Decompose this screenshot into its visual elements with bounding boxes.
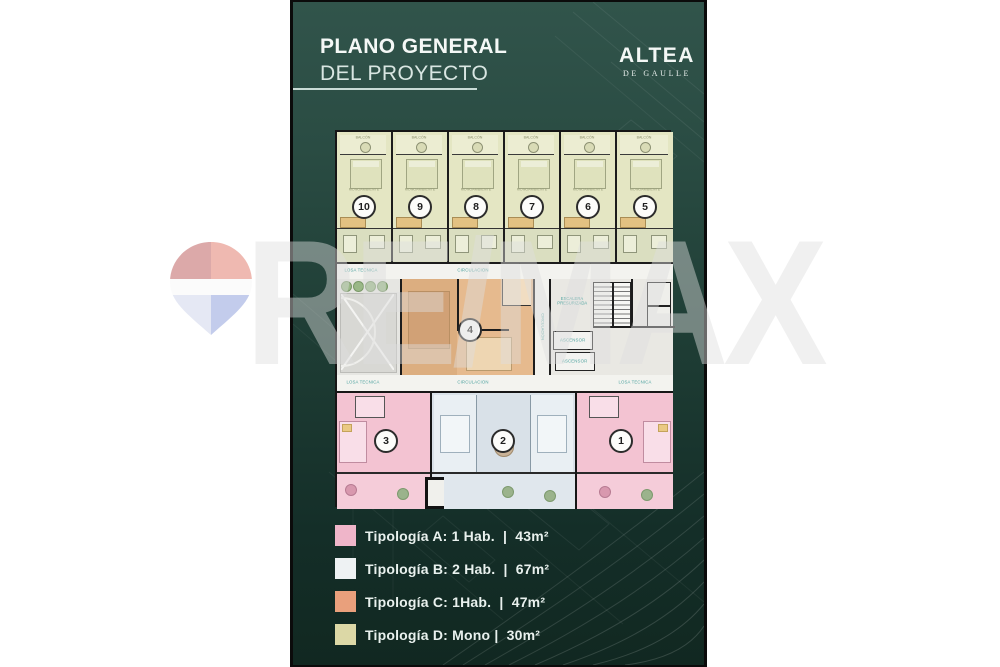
service-stair: [425, 477, 444, 509]
shrub-icon: [377, 281, 388, 292]
balcony-label: BALCÓN: [630, 136, 659, 140]
balcony-label: BALCÓN: [461, 136, 489, 140]
balcony-label: BALCÓN: [517, 136, 545, 140]
unit-type-label: MONOAMBIENTE: [403, 188, 436, 192]
floor-plan: BALCÓN MONOAMBIENTE 10 BALCÓN MONOAMBIEN…: [335, 130, 671, 507]
legend-item-a: Tipología A: 1 Hab. | 43m²: [335, 525, 549, 546]
fixture: [455, 235, 469, 253]
balcony: [432, 472, 575, 509]
page-title: PLANO GENERAL: [320, 35, 507, 59]
wall-segment: [631, 279, 633, 328]
pillow: [658, 424, 668, 432]
unit-number-badge: 9: [408, 195, 432, 219]
terrace-area: [337, 279, 400, 375]
legend: Tipología A: 1 Hab. | 43m² Tipología B: …: [335, 525, 549, 645]
fixture: [623, 235, 637, 253]
unit-type-label: MONOAMBIENTE: [571, 188, 604, 192]
rug: [408, 291, 450, 349]
table-icon: [640, 142, 651, 153]
legend-label: Tipología D: Mono | 30m²: [365, 627, 540, 643]
fixture: [343, 235, 357, 253]
elevator-label: ASCENSOR: [562, 359, 587, 363]
unit-type-label: MONOAMBIENTE: [628, 188, 663, 192]
elevator-2: ASCENSOR: [555, 352, 595, 371]
pillow: [409, 161, 435, 167]
bed: [574, 159, 606, 189]
fixture: [425, 235, 441, 249]
balcony: BALCÓN: [452, 135, 498, 155]
bed: [643, 421, 671, 463]
fixture: [481, 235, 497, 249]
fixture: [399, 235, 413, 253]
wall-segment: [648, 305, 670, 307]
balcony-label: BALCÓN: [349, 136, 377, 140]
plant-icon: [544, 490, 556, 502]
balcony: BALCÓN: [508, 135, 554, 155]
stair-divider: [612, 283, 614, 327]
plant-icon: [397, 488, 409, 500]
legend-label: Tipología A: 1 Hab. | 43m²: [365, 528, 549, 544]
bedroom-left: [434, 395, 477, 473]
service-core: ESCALERA PRESURIZADA ASCENSOR ASCENSOR: [549, 279, 673, 375]
balcony: BALCÓN: [340, 135, 386, 155]
unit-number-badge: 5: [633, 195, 657, 219]
unit-type-label: MONOAMBIENTE: [515, 188, 548, 192]
unit-7: BALCÓN MONOAMBIENTE 7: [505, 132, 561, 262]
bed: [518, 159, 550, 189]
fixture: [537, 235, 553, 249]
shrub-icon: [341, 281, 352, 292]
corridor-upper: LOSA TÉCNICA CIRCULACIÓN: [337, 262, 673, 279]
unit-number-badge: 7: [520, 195, 544, 219]
table-icon: [416, 142, 427, 153]
bathroom-area: [393, 228, 447, 262]
fixture: [511, 235, 525, 253]
fixture: [567, 235, 581, 253]
legend-swatch-b: [335, 558, 356, 579]
fixture: [593, 235, 609, 249]
legend-label: Tipología B: 2 Hab. | 67m²: [365, 561, 549, 577]
wall-segment: [457, 279, 459, 329]
balcony: BALCÓN: [564, 135, 610, 155]
fixture: [369, 235, 385, 249]
meter-room: [647, 282, 671, 328]
unit-8: BALCÓN MONOAMBIENTE 8: [449, 132, 505, 262]
service-slab-label: LOSA TÉCNICA: [334, 381, 392, 385]
balcony: BALCÓN: [620, 135, 668, 155]
corridor-label: CIRCULACIÓN: [444, 269, 502, 273]
unit-number-badge: 4: [458, 318, 482, 342]
elevator-1: ASCENSOR: [553, 331, 593, 350]
legend-label: Tipología C: 1Hab. | 47m²: [365, 594, 545, 610]
bed: [350, 159, 382, 189]
brochure-card: PLANO GENERAL DEL PROYECTO ALTEA DE GAUL…: [290, 0, 707, 667]
plant-icon: [641, 489, 653, 501]
unit-number-badge: 8: [464, 195, 488, 219]
table-icon: [360, 142, 371, 153]
legend-item-d: Tipología D: Mono | 30m²: [335, 624, 549, 645]
legend-item-c: Tipología C: 1Hab. | 47m²: [335, 591, 549, 612]
unit-type-label: MONOAMBIENTE: [347, 188, 380, 192]
balcony: BALCÓN: [396, 135, 442, 155]
bed: [630, 159, 662, 189]
bathroom-area: [449, 228, 503, 262]
remax-balloon-icon: [167, 241, 255, 341]
unit-5: BALCÓN MONOAMBIENTE 5: [617, 132, 673, 262]
stairs: [593, 282, 631, 328]
balcony: [337, 472, 430, 509]
unit-9: BALCÓN MONOAMBIENTE 9: [393, 132, 449, 262]
bathroom-area: [617, 228, 673, 262]
shrub-icon: [365, 281, 376, 292]
plant-icon: [599, 486, 611, 498]
logo-name: ALTEA: [619, 44, 695, 68]
pillow: [465, 161, 491, 167]
paved-pad: [340, 293, 397, 373]
bathroom: [589, 396, 619, 418]
bathroom-area: [337, 228, 391, 262]
unit-number-badge: 10: [352, 195, 376, 219]
bed: [537, 415, 567, 453]
bathroom-area: [561, 228, 615, 262]
shrub-icon: [353, 281, 364, 292]
unit-number-badge: 1: [609, 429, 633, 453]
bedroom-right: [530, 395, 573, 473]
balcony-label: BALCÓN: [405, 136, 433, 140]
pillow: [521, 161, 547, 167]
unit-10: BALCÓN MONOAMBIENTE 10: [337, 132, 393, 262]
pillow: [577, 161, 603, 167]
bathroom: [502, 279, 531, 306]
wall-segment: [593, 326, 675, 328]
table-icon: [584, 142, 595, 153]
bathroom-area: [505, 228, 559, 262]
bed: [440, 415, 470, 453]
bed: [462, 159, 494, 189]
legend-swatch-a: [335, 525, 356, 546]
fixture: [651, 235, 667, 249]
page-subtitle: DEL PROYECTO: [320, 62, 507, 86]
service-slab-label: LOSA TÉCNICA: [332, 269, 390, 273]
logo-subtitle: DE GAULLE: [619, 69, 695, 78]
unit-number-badge: 2: [491, 429, 515, 453]
bed: [466, 337, 512, 371]
unit-type-label: MONOAMBIENTE: [459, 188, 492, 192]
bed: [339, 421, 367, 463]
title-underline: [293, 88, 477, 90]
unit-number-badge: 6: [576, 195, 600, 219]
balcony-label: BALCÓN: [573, 136, 601, 140]
corridor-vertical: CIRCULACIÓN: [535, 279, 549, 375]
unit-6: BALCÓN MONOAMBIENTE 6: [561, 132, 617, 262]
pillow: [353, 161, 379, 167]
legend-item-b: Tipología B: 2 Hab. | 67m²: [335, 558, 549, 579]
project-logo: ALTEA DE GAULLE: [619, 44, 695, 78]
table-icon: [528, 142, 539, 153]
elevator-label: ASCENSOR: [560, 338, 585, 342]
corridor-lower: LOSA TÉCNICA CIRCULACIÓN LOSA TÉCNICA: [337, 375, 673, 393]
stairs-label: ESCALERA PRESURIZADA: [557, 297, 586, 307]
table-icon: [472, 142, 483, 153]
title-block: PLANO GENERAL DEL PROYECTO: [320, 35, 507, 86]
bed: [406, 159, 438, 189]
legend-swatch-d: [335, 624, 356, 645]
balcony: [577, 472, 673, 509]
service-slab-label: LOSA TÉCNICA: [606, 381, 664, 385]
pillow: [342, 424, 352, 432]
unit-number-badge: 3: [374, 429, 398, 453]
stairs-label-line2: PRESURIZADA: [557, 302, 586, 307]
corridor-label: CIRCULACIÓN: [444, 381, 502, 385]
pillow: [633, 161, 659, 167]
bathroom: [355, 396, 385, 418]
legend-swatch-c: [335, 591, 356, 612]
plant-icon: [502, 486, 514, 498]
page: PLANO GENERAL DEL PROYECTO ALTEA DE GAUL…: [0, 0, 1000, 667]
plant-icon: [345, 484, 357, 496]
corridor-label: CIRCULACIÓN: [540, 314, 544, 341]
